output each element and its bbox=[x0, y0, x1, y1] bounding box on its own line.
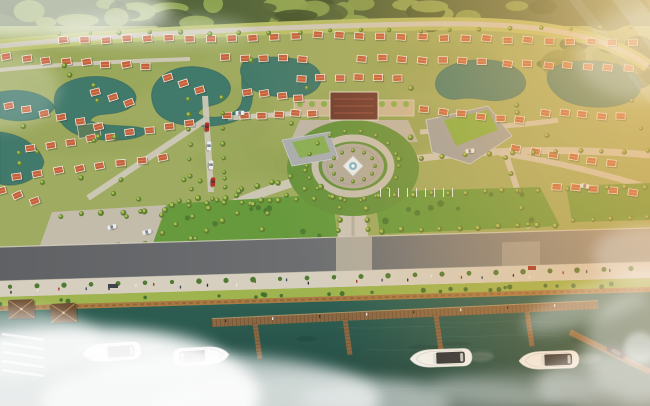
masterplan-aerial-scene bbox=[0, 0, 650, 406]
mist-cloud bbox=[50, 14, 250, 46]
mist-cloud bbox=[80, 332, 220, 380]
aerial-render-image bbox=[0, 0, 650, 406]
